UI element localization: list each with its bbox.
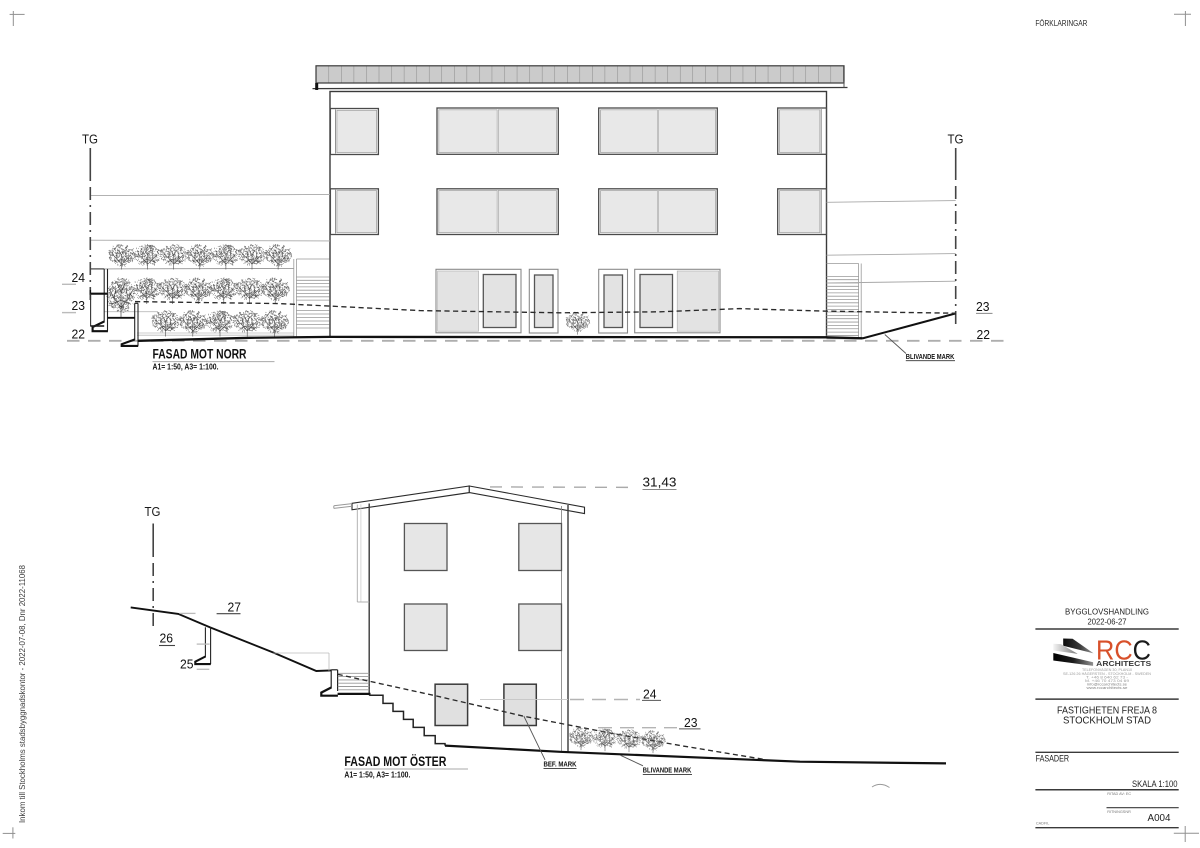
svg-text:www.rccarchitects.se: www.rccarchitects.se [1087,686,1128,690]
svg-text:ARCHITECTS: ARCHITECTS [1096,659,1151,668]
svg-text:22: 22 [977,327,991,342]
svg-text:22: 22 [72,327,86,342]
svg-text:FÖRKLARINGAR: FÖRKLARINGAR [1035,18,1087,28]
svg-text:STOCKHOLM STAD: STOCKHOLM STAD [1063,716,1151,727]
svg-text:BYGGLOVSHANDLING: BYGGLOVSHANDLING [1065,606,1149,616]
svg-text:SKALA 1:100: SKALA 1:100 [1132,779,1178,789]
svg-text:23: 23 [976,299,990,314]
svg-text:24: 24 [72,270,86,285]
svg-text:A004: A004 [1148,813,1171,824]
svg-text:BEF. MARK: BEF. MARK [544,760,578,769]
svg-text:FASAD MOT NORR: FASAD MOT NORR [153,347,247,362]
svg-text:Inkom till Stockholms stadsbyg: Inkom till Stockholms stadsbyggnadskonto… [17,565,27,823]
svg-text:CADFIL: CADFIL [1036,822,1050,826]
svg-text:25: 25 [180,657,194,672]
svg-text:23: 23 [72,298,86,313]
svg-text:FASAD MOT ÖSTER: FASAD MOT ÖSTER [344,754,446,769]
svg-text:BLIVANDE MARK: BLIVANDE MARK [906,352,955,361]
svg-text:24: 24 [643,686,657,701]
svg-text:TG: TG [948,132,964,147]
svg-text:27: 27 [228,600,242,615]
svg-text:A1= 1:50, A3= 1:100.: A1= 1:50, A3= 1:100. [153,363,219,372]
svg-text:TG: TG [145,504,161,519]
svg-text:RITAD AV: EC: RITAD AV: EC [1107,792,1131,796]
svg-text:26: 26 [160,631,174,646]
svg-text:FASADER: FASADER [1036,753,1070,763]
svg-text:TG: TG [82,132,98,147]
svg-text:31,43: 31,43 [643,475,677,490]
svg-text:BLIVANDE MARK: BLIVANDE MARK [643,766,692,775]
svg-text:23: 23 [684,715,698,730]
svg-text:RITNINGSNR: RITNINGSNR [1107,810,1131,814]
svg-text:2022-06-27: 2022-06-27 [1088,617,1127,626]
svg-text:A1= 1:50, A3= 1:100.: A1= 1:50, A3= 1:100. [344,771,410,780]
